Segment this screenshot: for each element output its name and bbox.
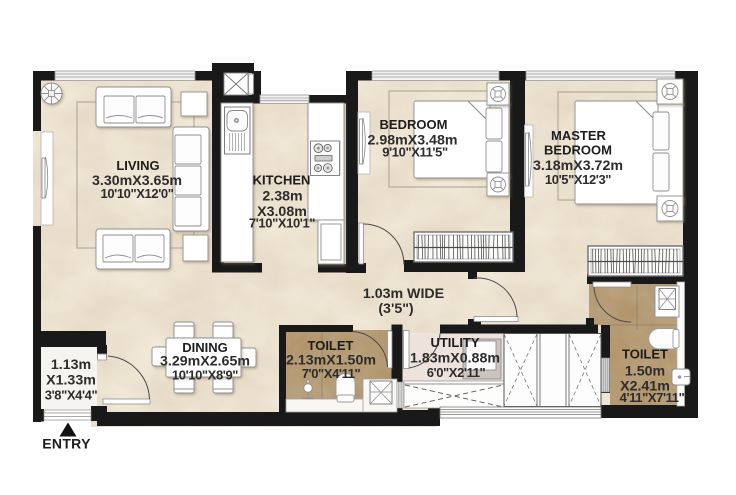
svg-text:10'10"X12'0": 10'10"X12'0"	[101, 186, 174, 201]
svg-text:1.03m WIDE: 1.03m WIDE	[363, 286, 444, 302]
svg-text:1.50m: 1.50m	[625, 364, 665, 380]
svg-text:10'5"X12'3": 10'5"X12'3"	[545, 172, 611, 187]
svg-text:1.13m: 1.13m	[51, 357, 91, 373]
svg-text:BEDROOM: BEDROOM	[380, 117, 448, 132]
svg-text:BEDROOM: BEDROOM	[544, 143, 612, 158]
svg-text:TOILET: TOILET	[622, 347, 668, 362]
svg-text:LIVING: LIVING	[116, 158, 159, 173]
svg-text:9'10"X11'5": 9'10"X11'5"	[382, 145, 448, 160]
svg-text:7'10"X10'1": 7'10"X10'1"	[249, 216, 315, 231]
svg-text:7'0"X4'11": 7'0"X4'11"	[302, 366, 361, 381]
svg-text:2.38m: 2.38m	[262, 189, 302, 205]
svg-text:KITCHEN: KITCHEN	[253, 173, 311, 188]
svg-text:ENTRY: ENTRY	[42, 436, 91, 452]
svg-text:10'10"X8'9": 10'10"X8'9"	[172, 368, 238, 383]
svg-text:3'8"X4'4": 3'8"X4'4"	[45, 388, 98, 403]
svg-text:(3'5"): (3'5")	[378, 301, 414, 317]
svg-text:TOILET: TOILET	[308, 338, 354, 353]
svg-text:6'0"X2'11": 6'0"X2'11"	[427, 365, 486, 380]
svg-text:X1.33m: X1.33m	[46, 373, 96, 389]
svg-text:UTILITY: UTILITY	[430, 335, 479, 350]
svg-text:4'11"X7'11": 4'11"X7'11"	[620, 390, 685, 405]
svg-text:MASTER: MASTER	[551, 128, 607, 143]
